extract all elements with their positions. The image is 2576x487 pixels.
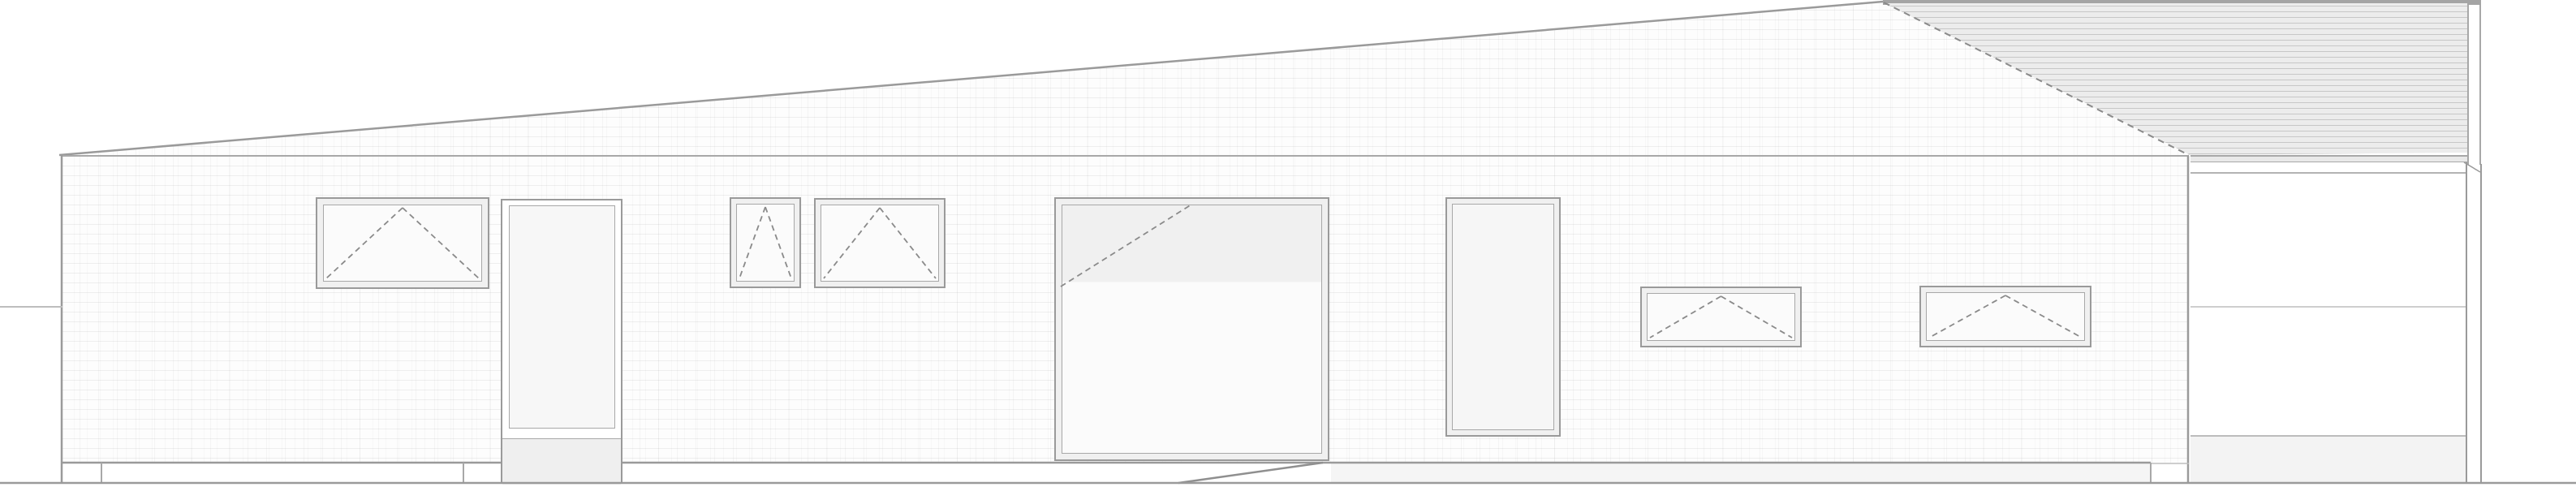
elevation-drawing bbox=[0, 0, 2576, 487]
opening-symbol-dashed bbox=[1650, 296, 1721, 338]
opening-symbol-dashed bbox=[1061, 205, 1191, 287]
rear-roof-hatch bbox=[1885, 3, 2467, 155]
opening-symbol-dashed bbox=[1721, 296, 1793, 338]
linework-overlay bbox=[0, 0, 2576, 487]
opening-symbol-dashed bbox=[739, 207, 765, 278]
opening-symbol-dashed bbox=[880, 208, 936, 278]
roof-line bbox=[59, 2, 1883, 155]
opening-symbol-dashed bbox=[326, 208, 403, 278]
opening-symbol-dashed bbox=[765, 207, 791, 278]
opening-symbol-dashed bbox=[1929, 295, 2005, 338]
opening-symbol-dashed bbox=[2005, 295, 2082, 338]
opening-symbol-dashed bbox=[403, 208, 479, 278]
ramp-edge bbox=[1178, 463, 1323, 483]
opening-symbol-dashed bbox=[824, 208, 880, 278]
